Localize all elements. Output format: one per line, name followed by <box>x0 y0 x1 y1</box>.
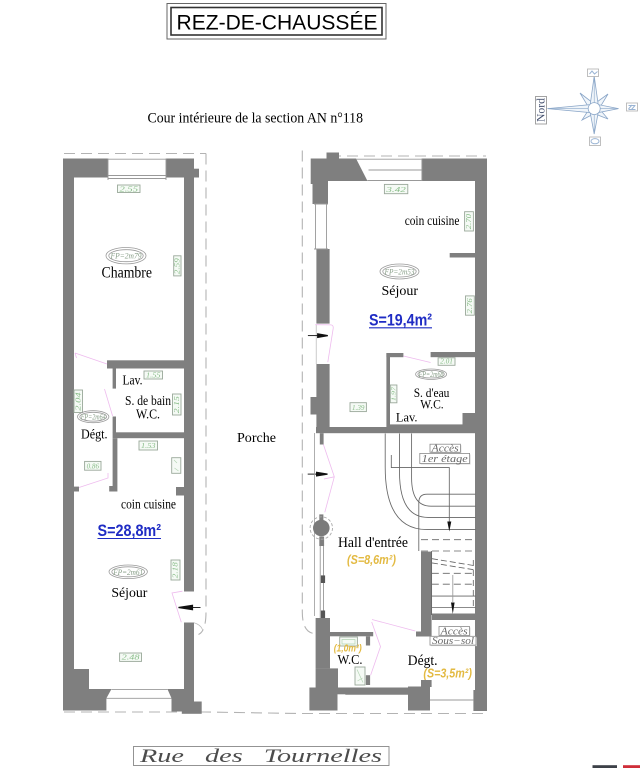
svg-text:Cour intérieure de la section: Cour intérieure de la section AN n°118 <box>148 111 364 127</box>
svg-text:2.15: 2.15 <box>172 396 181 413</box>
svg-text:Lav.: Lav. <box>123 372 143 387</box>
svg-text:(S=3,5m²): (S=3,5m²) <box>423 667 472 681</box>
svg-text:(1,0m²): (1,0m²) <box>334 644 363 655</box>
svg-text:1.55: 1.55 <box>146 371 161 380</box>
svg-text:1.53: 1.53 <box>141 441 156 450</box>
svg-text:(S=8,6m²): (S=8,6m²) <box>347 553 396 567</box>
svg-text:S=28,8m²: S=28,8m² <box>98 521 162 540</box>
svg-text:1.97: 1.97 <box>391 386 398 401</box>
svg-text:W.C.: W.C. <box>136 406 160 421</box>
svg-text:2.76: 2.76 <box>465 298 474 314</box>
svg-text:Lav.: Lav. <box>396 410 418 425</box>
svg-text:Nord: Nord <box>534 98 548 122</box>
svg-text:FP=2m68: FP=2m68 <box>418 369 444 379</box>
svg-text:Séjour: Séjour <box>382 283 419 298</box>
svg-text:3.42: 3.42 <box>385 185 406 194</box>
svg-text:FP=2m64: FP=2m64 <box>80 412 106 422</box>
svg-text:Hall d'entrée: Hall d'entrée <box>338 535 408 551</box>
svg-text:FP=2m61: FP=2m61 <box>112 567 143 577</box>
svg-text:2.70: 2.70 <box>464 214 473 230</box>
svg-text:2.04: 2.04 <box>73 392 82 411</box>
svg-text:1.39: 1.39 <box>352 403 365 412</box>
svg-text:W.C.: W.C. <box>420 396 443 411</box>
svg-text:coin cuisine: coin cuisine <box>121 496 176 511</box>
svg-text:2.01: 2.01 <box>440 357 453 366</box>
svg-text:Porche: Porche <box>237 430 276 445</box>
svg-text:Séjour: Séjour <box>111 586 147 601</box>
svg-text:0.86: 0.86 <box>87 461 100 470</box>
svg-text:2.59: 2.59 <box>172 258 181 274</box>
svg-text:2.18: 2.18 <box>170 562 179 578</box>
svg-text:2.55: 2.55 <box>120 184 139 193</box>
svg-text:coin cuisine: coin cuisine <box>405 213 460 228</box>
svg-text:Dégt.: Dégt. <box>81 426 108 441</box>
svg-text:1er étage: 1er étage <box>422 453 468 465</box>
svg-text:Rue des Tournelles: Rue des Tournelles <box>139 746 382 767</box>
svg-text:2.48: 2.48 <box>122 653 140 662</box>
svg-text:Sous−sol: Sous−sol <box>432 636 474 647</box>
svg-text:FP=2m79: FP=2m79 <box>110 251 143 261</box>
svg-text:REZ-DE-CHAUSSÉE: REZ-DE-CHAUSSÉE <box>177 10 378 35</box>
svg-text:Chambre: Chambre <box>102 265 153 282</box>
svg-text:FP=2m53: FP=2m53 <box>384 267 415 277</box>
svg-text:S=19,4m²: S=19,4m² <box>369 311 432 330</box>
